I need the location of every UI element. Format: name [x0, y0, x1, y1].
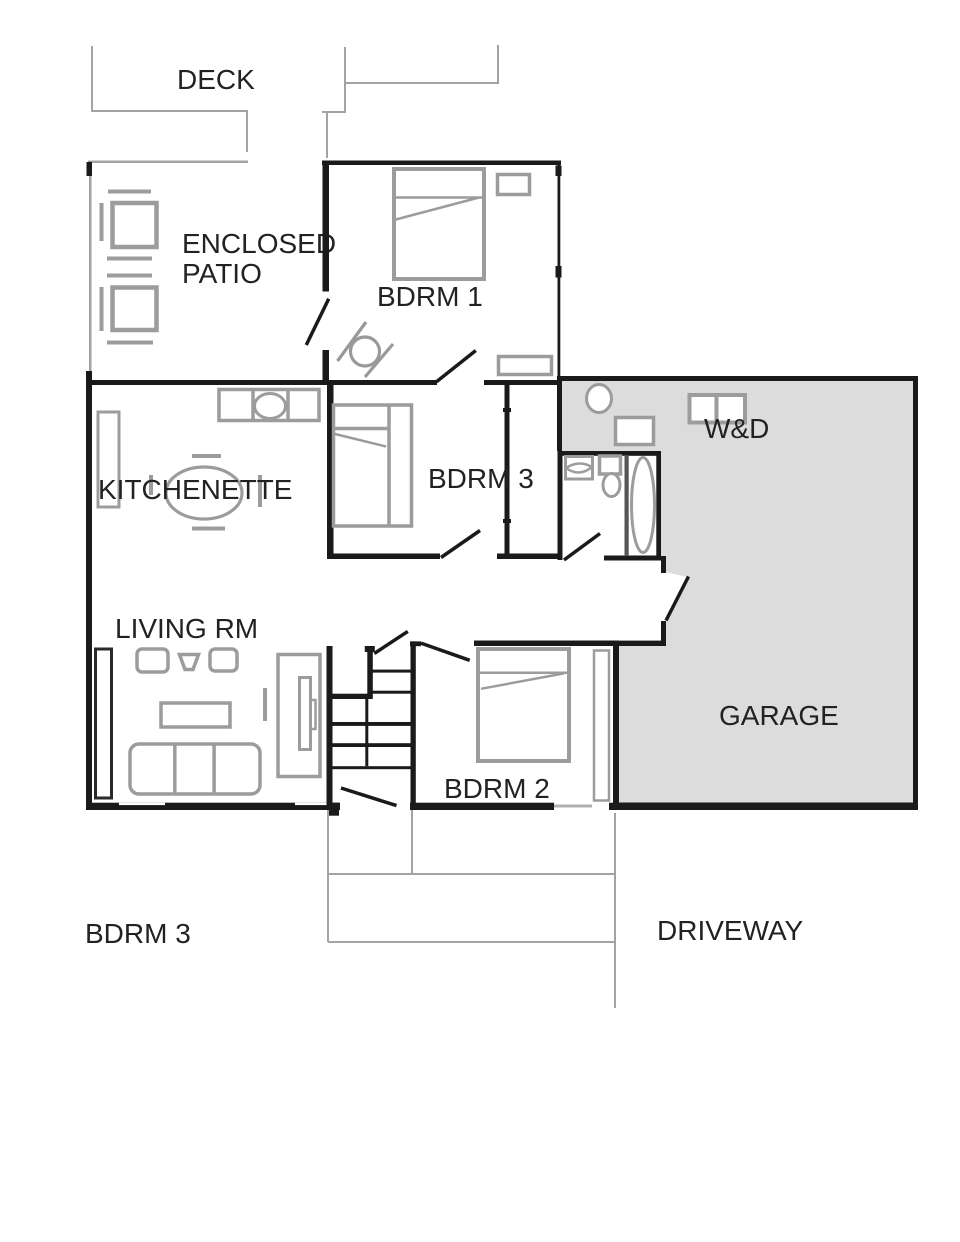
svg-text:LIVING RM: LIVING RM: [115, 613, 258, 644]
svg-text:BDRM 3: BDRM 3: [85, 918, 191, 949]
svg-text:BDRM 2: BDRM 2: [444, 773, 550, 804]
svg-text:BDRM 1: BDRM 1: [377, 281, 483, 312]
svg-text:PATIO: PATIO: [182, 258, 262, 289]
svg-text:DECK: DECK: [177, 64, 255, 95]
svg-text:KITCHENETTE: KITCHENETTE: [98, 474, 292, 505]
svg-text:DRIVEWAY: DRIVEWAY: [657, 915, 804, 946]
svg-text:ENCLOSED: ENCLOSED: [182, 228, 336, 259]
svg-text:GARAGE: GARAGE: [719, 700, 839, 731]
svg-text:BDRM 3: BDRM 3: [428, 463, 534, 494]
svg-text:W&D: W&D: [704, 413, 769, 444]
